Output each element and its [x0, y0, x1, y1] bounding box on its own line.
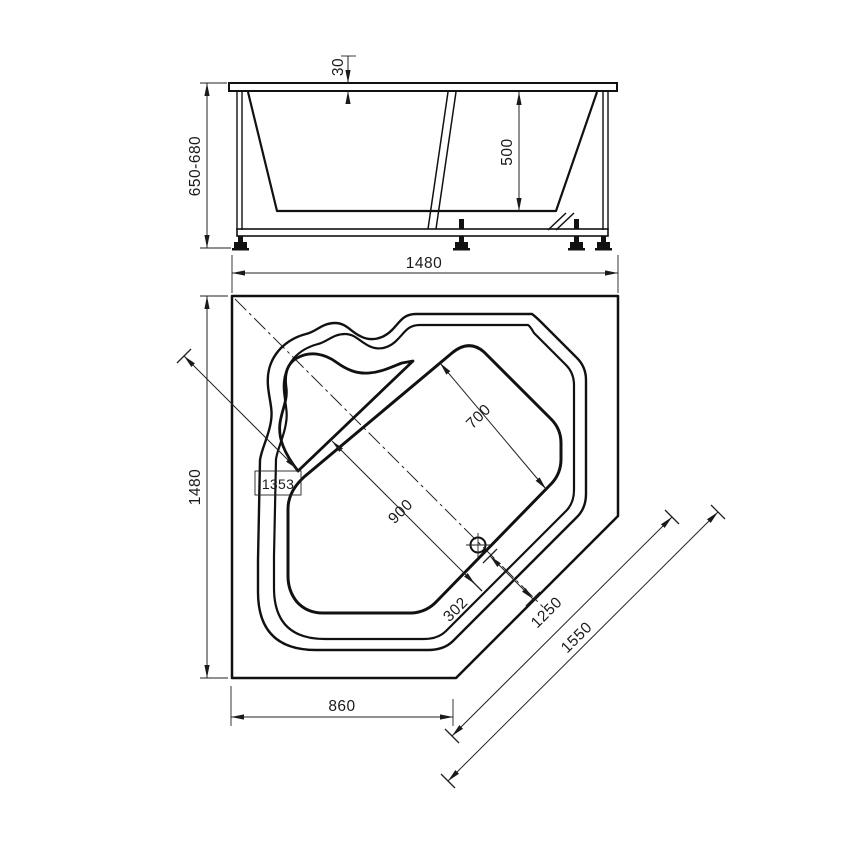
- technical-drawing-page: 30 650-680 500 1480: [0, 0, 846, 864]
- dim-overall-width-label: 1480: [406, 255, 442, 272]
- dim-overall-depth-label: 1480: [187, 469, 204, 505]
- dim-inner-depth-label: 500: [499, 138, 516, 165]
- dim-front-edge-label: 860: [328, 698, 355, 715]
- bathtub-technical-drawing: 30 650-680 500 1480: [0, 0, 846, 864]
- dim-height-range-label: 650-680: [187, 136, 204, 196]
- dim-corner-diagonal-label: 1353: [262, 476, 294, 492]
- drawing-background: [0, 0, 846, 864]
- dim-rim-thickness-label: 30: [330, 58, 347, 76]
